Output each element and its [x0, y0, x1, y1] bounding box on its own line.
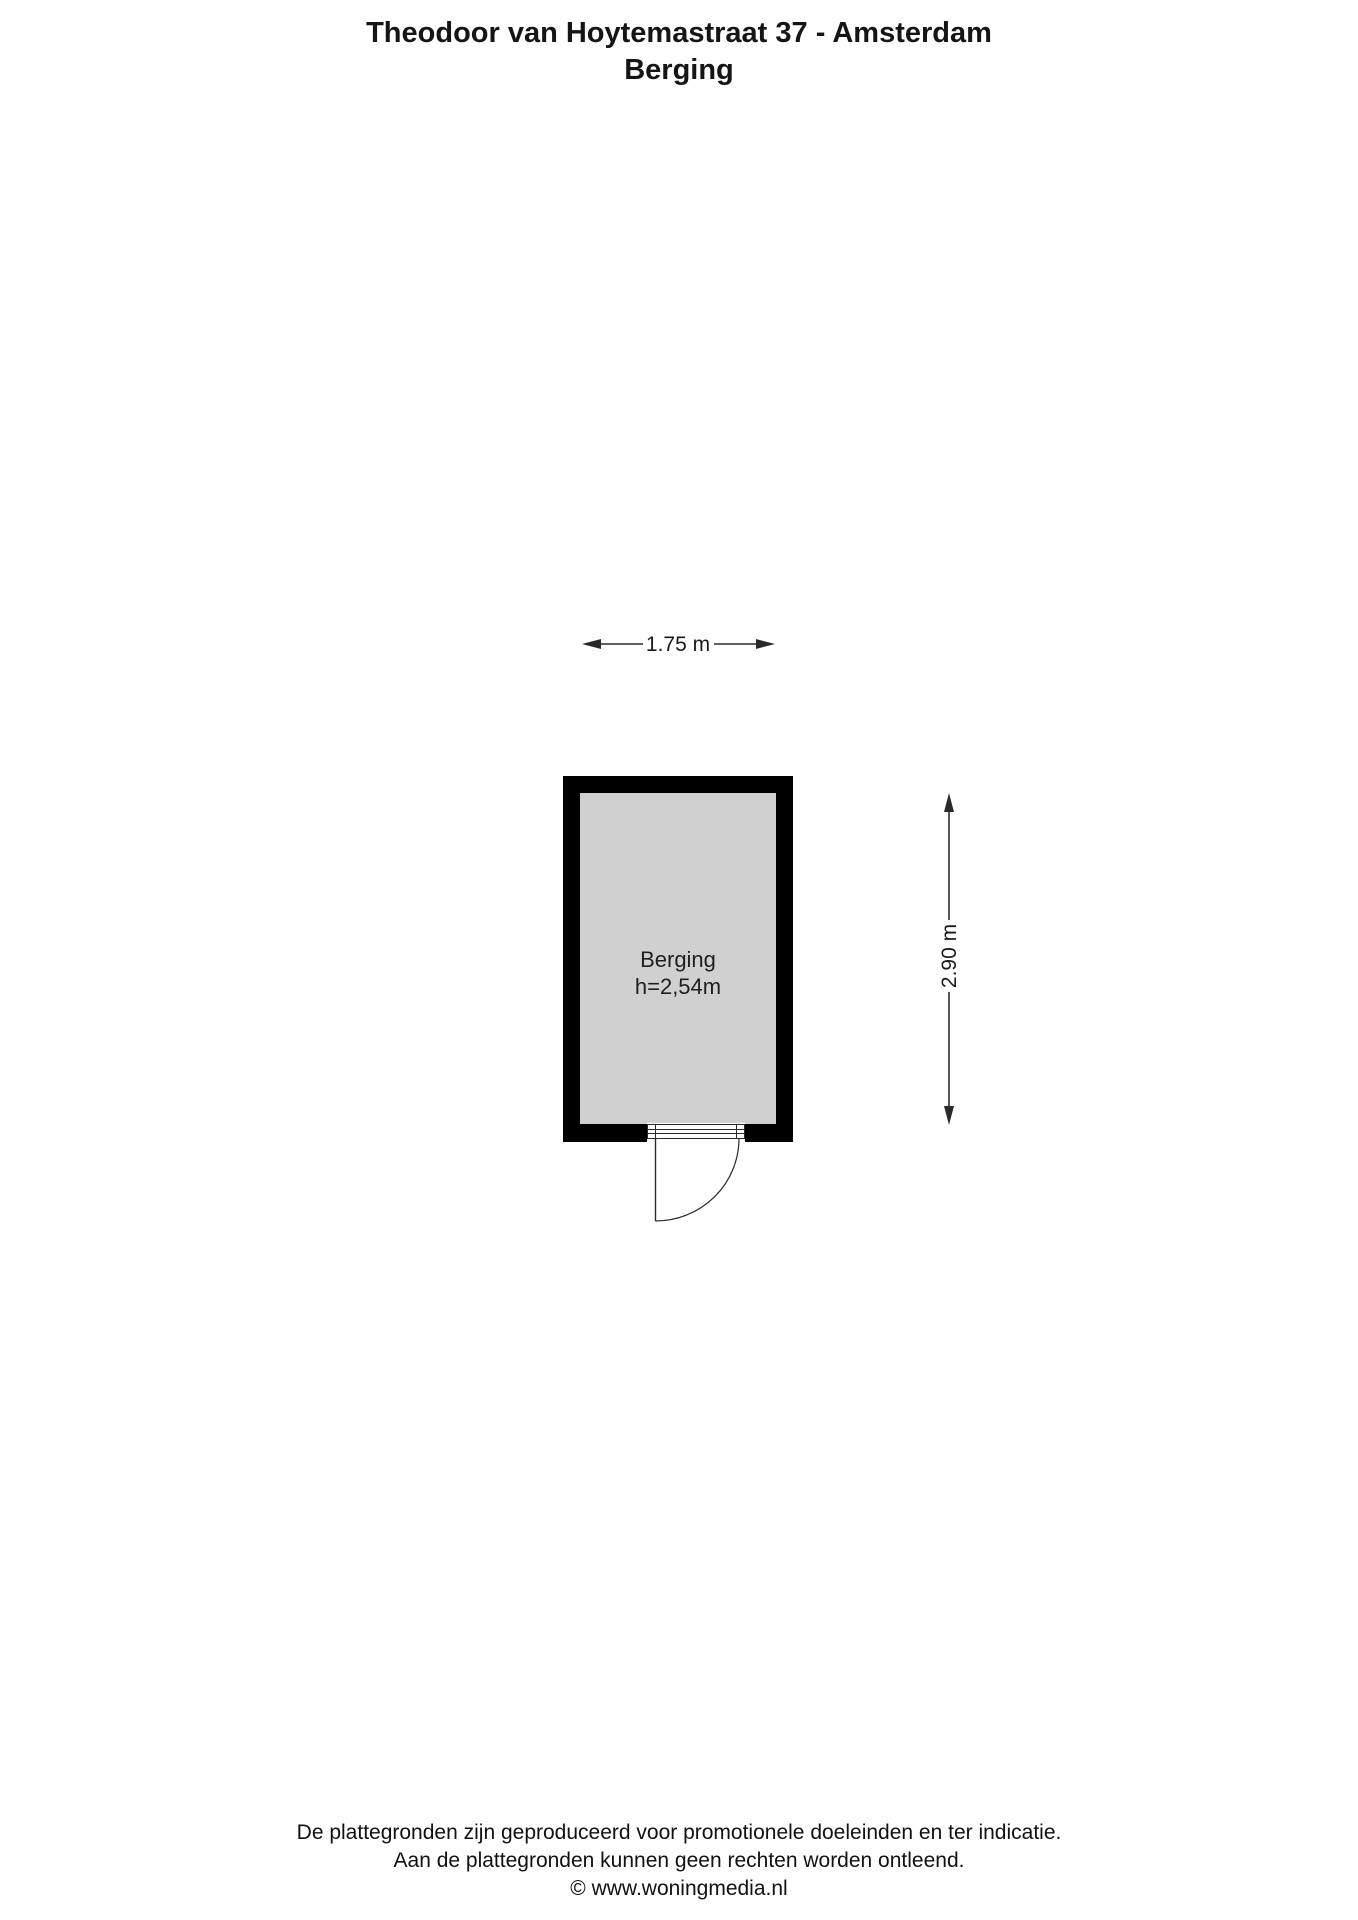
arrow-right-icon [756, 639, 775, 649]
width-dimension: 1.75 m [563, 628, 793, 660]
page-title: Theodoor van Hoytemastraat 37 - Amsterda… [0, 15, 1358, 89]
width-dimension-label: 1.75 m [646, 633, 710, 656]
floor-plan [563, 776, 793, 1231]
room-label: Berging h=2,54m [563, 946, 793, 1000]
height-dimension-label: 2.90 m [938, 924, 961, 988]
footer-disclaimer-2: Aan de plattegronden kunnen geen rechten… [0, 1847, 1358, 1875]
height-dimension: 2.90 m [934, 790, 966, 1130]
page-title-address: Theodoor van Hoytemastraat 37 - Amsterda… [0, 15, 1358, 52]
door-swing-icon [656, 1139, 740, 1222]
room-name: Berging [563, 946, 793, 973]
footer-copyright: © www.woningmedia.nl [0, 1875, 1358, 1903]
footer: De plattegronden zijn geproduceerd voor … [0, 1819, 1358, 1903]
door-threshold [648, 1125, 745, 1139]
room-ceiling-height: h=2,54m [563, 973, 793, 1000]
arrow-down-icon [944, 1106, 954, 1125]
arrow-up-icon [944, 793, 954, 812]
footer-disclaimer-1: De plattegronden zijn geproduceerd voor … [0, 1819, 1358, 1847]
page-title-room: Berging [0, 52, 1358, 89]
arrow-left-icon [582, 639, 601, 649]
